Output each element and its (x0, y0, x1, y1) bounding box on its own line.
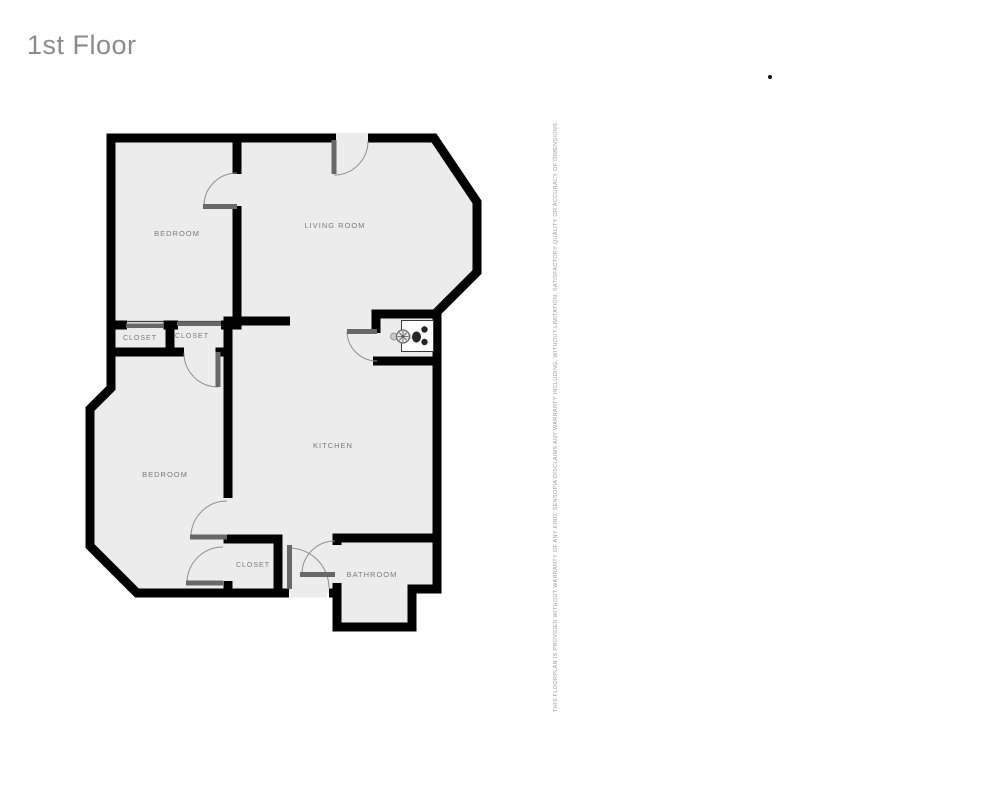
stray-dot (768, 75, 772, 79)
room-label-living-room: LIVING ROOM (304, 221, 365, 230)
room-label-bathroom: BATHROOM (347, 570, 398, 579)
bedroom1-door-leaf (203, 204, 237, 209)
kitchen-door-leaf (347, 329, 377, 334)
room-label-closet-3: CLOSET (236, 562, 270, 569)
bathroom-door-leaf (300, 572, 335, 577)
room-label-closet-1: CLOSET (123, 335, 157, 342)
closet3-door-leaf (186, 581, 223, 586)
floorplan-page: 1st Floor (0, 0, 1008, 792)
closet2-door-leaf (216, 352, 221, 387)
floorplan-drawing: CLOSET BEDROOM LIVING ROOM CLOSET CLOSET… (0, 0, 1008, 792)
floor-area (90, 138, 477, 627)
entry-door-top-leaf (332, 140, 337, 174)
room-label-bedroom-1: BEDROOM (154, 229, 200, 238)
entry-door-bottom-leaf (287, 545, 292, 589)
disclaimer-text: THIS FLOORPLAN IS PROVIDED WITHOUT WARRA… (553, 120, 563, 712)
room-label-kitchen: KITCHEN (313, 441, 353, 450)
room-label-closet-2: CLOSET (175, 333, 209, 340)
room-label-bedroom-2: BEDROOM (142, 470, 188, 479)
bedroom2-door-leaf (190, 535, 227, 540)
